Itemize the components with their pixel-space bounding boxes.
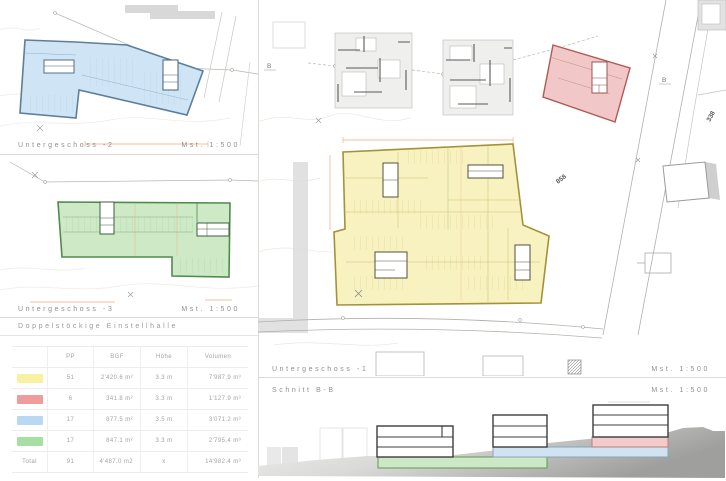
ug2-scale: Mst. 1:500 [181, 142, 240, 150]
section-scale: Mst. 1:500 [651, 387, 710, 395]
section-bb-drawing [258, 400, 726, 481]
ug3-subtitle: Doppelstöckige Einstellhalle [18, 323, 178, 331]
section-mark-right: B [662, 77, 666, 84]
table-row-red: 6 341.8 m² 3.3 m 1'127.9 m³ [12, 388, 248, 409]
ug3-scale: Mst. 1:500 [181, 306, 240, 314]
plan-ug3-drawing [0, 160, 258, 316]
table-row-total: Total 91 4'487.0 m2 x 14'982.4 m³ [12, 451, 248, 472]
ug3-title: Untergeschoss -3 [18, 306, 114, 314]
ug1-scale: Mst. 1:500 [651, 366, 710, 374]
legend-swatch-red [17, 395, 43, 404]
section-mark-left: B [267, 63, 271, 70]
legend-swatch-blue [17, 416, 43, 425]
col-header-bgf: BGF [93, 347, 140, 367]
divider-ug3 [0, 317, 258, 318]
table-row-yellow: 51 2'420.6 m² 3.3 m 7'987.9 m³ [12, 367, 248, 388]
site-plan-ug1-drawing: B B 338 858 [258, 0, 726, 376]
table-row-blue: 17 877.5 m² 3.5 m 3'071.2 m³ [12, 409, 248, 430]
area-table: PP BGF Höhe Volumen 51 2'420.6 m² 3.3 m … [12, 346, 248, 473]
divider-ug1 [258, 377, 726, 378]
plan-ug2-drawing [0, 0, 258, 154]
col-header-hoehe: Höhe [140, 347, 187, 367]
ug1-title: Untergeschoss -1 [272, 366, 368, 374]
divider-subtitle [0, 335, 258, 336]
table-header-row: PP BGF Höhe Volumen [12, 346, 248, 367]
col-header-pp: PP [47, 347, 93, 367]
table-row-green: 17 847.1 m² 3.3 m 2'795.4 m³ [12, 430, 248, 451]
section-title: Schnitt B-B [272, 387, 336, 395]
legend-swatch-yellow [17, 374, 43, 383]
col-header-volumen: Volumen [187, 347, 248, 367]
parcel-label-338: 338 [706, 110, 717, 123]
parcel-label-858: 858 [555, 173, 568, 185]
divider-ug2 [0, 154, 258, 155]
plan-sheet: Untergeschoss -2 Mst. 1:500 Un [0, 0, 726, 481]
ug2-title: Untergeschoss -2 [18, 142, 114, 150]
legend-swatch-green [17, 437, 43, 446]
